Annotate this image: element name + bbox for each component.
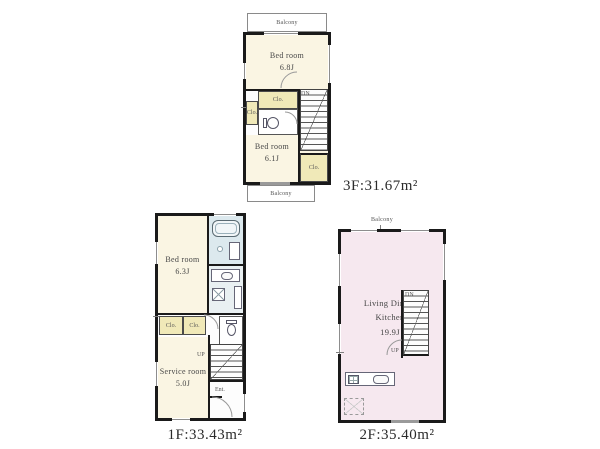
- room-size: 6.3J: [158, 266, 207, 278]
- room-label-bedroom-a: Bed room 6.8J: [246, 50, 328, 74]
- window: [338, 324, 341, 354]
- floor-1f-outline: Bed room 6.3J Clo.: [155, 213, 246, 421]
- door-arc: [204, 315, 218, 329]
- room-label-bedroom: Bed room 6.3J: [158, 254, 207, 278]
- vanity-counter: [211, 269, 240, 282]
- floorplan-sheet: Balcony Bed room 6.8J Clo. Clo: [0, 0, 600, 449]
- area-label-2f: 2F:35.40m²: [337, 427, 457, 444]
- window: [351, 229, 377, 232]
- wall: [210, 380, 243, 382]
- room-size: 6.1J: [246, 153, 298, 165]
- area-label-1f: 1F:33.43m²: [150, 427, 260, 444]
- door-arc: [281, 72, 297, 88]
- balcony-label: Balcony: [270, 191, 291, 197]
- wall: [158, 313, 243, 315]
- window: [172, 418, 190, 421]
- closet-label: Clo.: [189, 323, 199, 329]
- room-size: 5.0J: [158, 378, 208, 390]
- floor-2f-plan: Balcony Living Dining Kitchen 19.9J DN U…: [338, 216, 448, 426]
- toilet-icon: [263, 116, 283, 130]
- bathtub-icon: [212, 220, 240, 237]
- closet: Clo.: [183, 316, 206, 335]
- washroom: [207, 266, 243, 313]
- closet-label: Clo.: [247, 110, 257, 116]
- room-name: Bed room: [246, 50, 328, 62]
- refrigerator-icon: [344, 398, 364, 415]
- window: [328, 45, 331, 83]
- window: [264, 32, 298, 35]
- door-arc: [285, 112, 297, 124]
- entrance-label: Ent.: [215, 387, 225, 393]
- area-label-3f: 3F:31.67m²: [343, 178, 418, 195]
- stairs-direction: DN: [405, 292, 414, 298]
- tick-mark: [336, 352, 344, 353]
- bath-stool-icon: [217, 246, 223, 252]
- entrance-door-arc: [212, 397, 232, 417]
- washing-machine-icon: [212, 288, 225, 301]
- floor-3f-outline: Bed room 6.8J Clo. Clo.: [243, 32, 331, 185]
- stairs-direction: UP: [197, 352, 205, 358]
- sink-icon: [221, 272, 233, 280]
- closet-label: Clo.: [166, 323, 176, 329]
- kitchen-counter: [345, 372, 395, 386]
- window: [443, 244, 446, 280]
- closet: Clo.: [159, 316, 183, 335]
- room-name: Bed room: [158, 254, 207, 266]
- window: [338, 254, 341, 286]
- room-label-bedroom-b: Bed room 6.1J: [246, 141, 298, 165]
- closet-label: Clo.: [273, 97, 283, 103]
- closet: Clo.: [300, 153, 328, 182]
- kitchen-sink-icon: [373, 375, 389, 384]
- balcony-3f-bottom: Balcony: [247, 185, 315, 202]
- floor-1f-plan: Bed room 6.3J Clo.: [155, 213, 246, 421]
- room-name: Service room: [158, 366, 208, 378]
- window: [391, 420, 419, 423]
- closet: Clo.: [246, 101, 258, 125]
- closet: Clo.: [258, 91, 298, 109]
- stairs: [210, 344, 243, 380]
- stairs: [403, 290, 429, 356]
- stairs: [300, 89, 328, 151]
- floor-2f-outline: Living Dining Kitchen 19.9J DN UP: [338, 229, 446, 423]
- stairs-direction: DN: [301, 91, 310, 97]
- door-arc: [387, 340, 402, 355]
- bath-counter: [229, 242, 240, 260]
- window: [401, 229, 429, 232]
- balcony-label: Balcony: [338, 216, 426, 225]
- room-name: Bed room: [246, 141, 298, 153]
- toilet-room: [219, 316, 243, 347]
- stove-icon: [348, 375, 359, 384]
- entrance-door-opening: [243, 394, 246, 412]
- balcony-3f-top: Balcony: [247, 13, 327, 32]
- closet-label: Clo.: [309, 165, 319, 171]
- balcony-label: Balcony: [276, 20, 297, 26]
- toilet-icon: [225, 320, 238, 338]
- bathroom: [207, 216, 243, 266]
- toilet-room: [258, 109, 298, 135]
- washroom-counter: [234, 286, 242, 309]
- floor-3f-plan: Balcony Bed room 6.8J Clo. Clo: [243, 13, 333, 205]
- room-label-service: Service room 5.0J: [158, 366, 208, 390]
